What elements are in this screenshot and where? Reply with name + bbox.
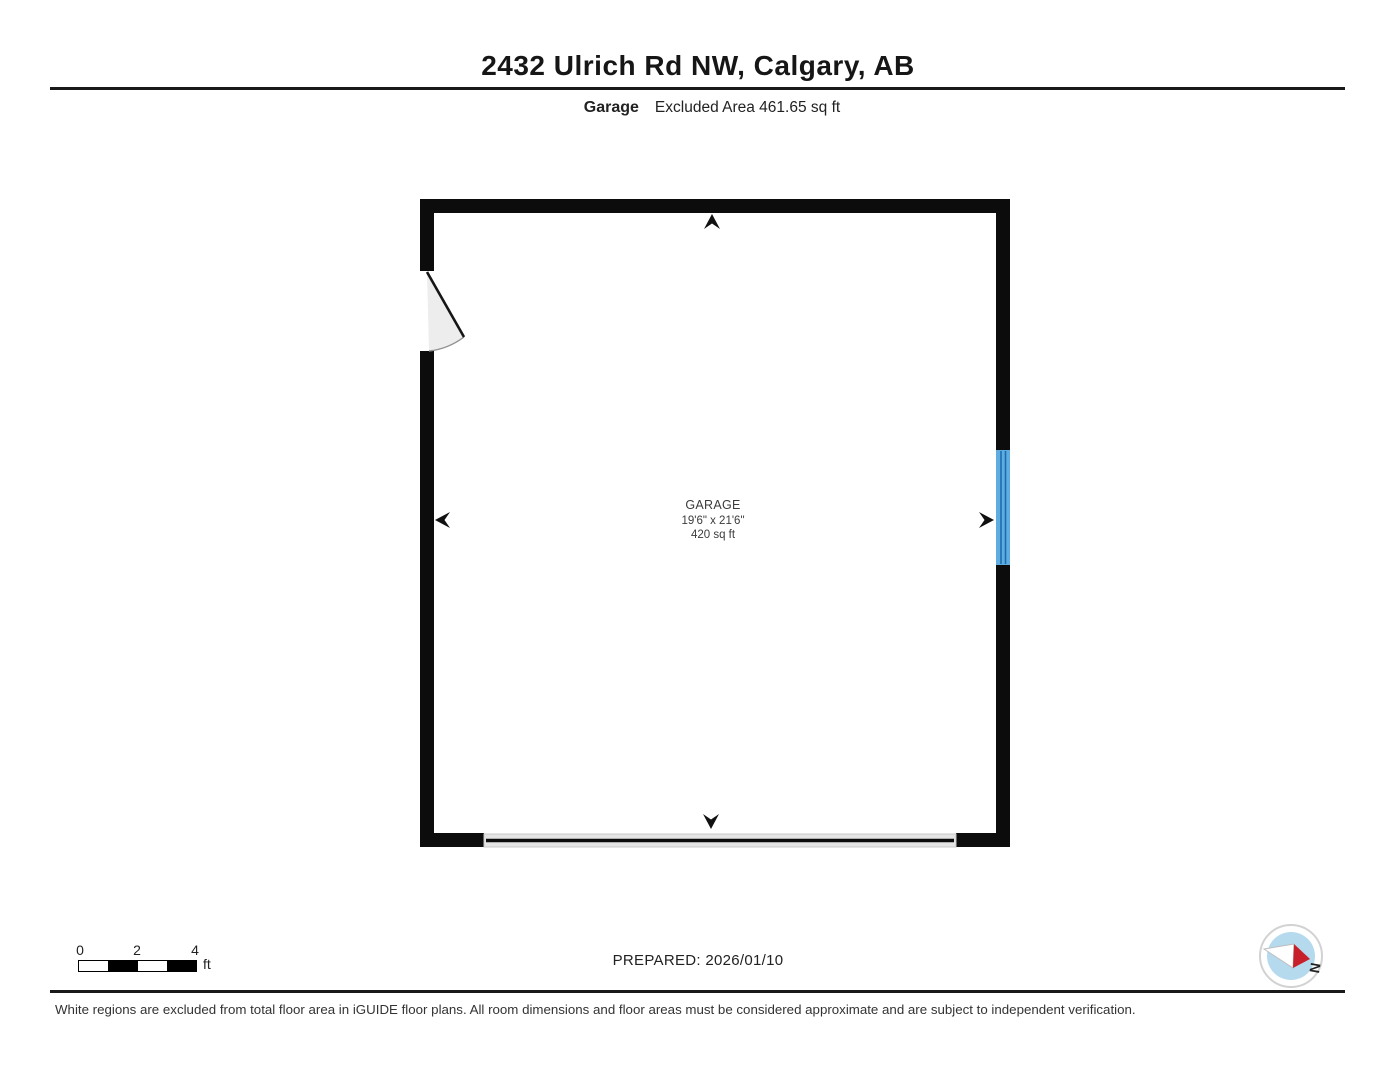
room-name: GARAGE xyxy=(613,498,813,514)
wall-bottom-right xyxy=(956,833,1010,847)
footer-divider xyxy=(50,990,1345,993)
window xyxy=(996,450,1010,565)
arrow-up-icon xyxy=(704,214,720,229)
arrow-right-icon xyxy=(979,512,994,528)
disclaimer-text: White regions are excluded from total fl… xyxy=(55,1002,1355,1017)
arrow-down-icon xyxy=(703,814,719,829)
room-dimensions: 19'6" x 21'6" xyxy=(613,514,813,528)
wall-right-upper xyxy=(996,199,1010,450)
prepared-date-label: PREPARED: 2026/01/10 xyxy=(0,952,1396,969)
wall-top xyxy=(420,199,1010,213)
arrow-left-icon xyxy=(435,512,450,528)
wall-left-upper xyxy=(420,199,434,271)
wall-right-lower xyxy=(996,565,1010,847)
floorplan-page: 2432 Ulrich Rd NW, Calgary, AB GarageExc… xyxy=(0,0,1396,1080)
wall-bottom-left xyxy=(420,833,484,847)
room-area: 420 sq ft xyxy=(613,528,813,542)
room-label: GARAGE 19'6" x 21'6" 420 sq ft xyxy=(613,498,813,542)
wall-left-lower xyxy=(420,351,434,847)
